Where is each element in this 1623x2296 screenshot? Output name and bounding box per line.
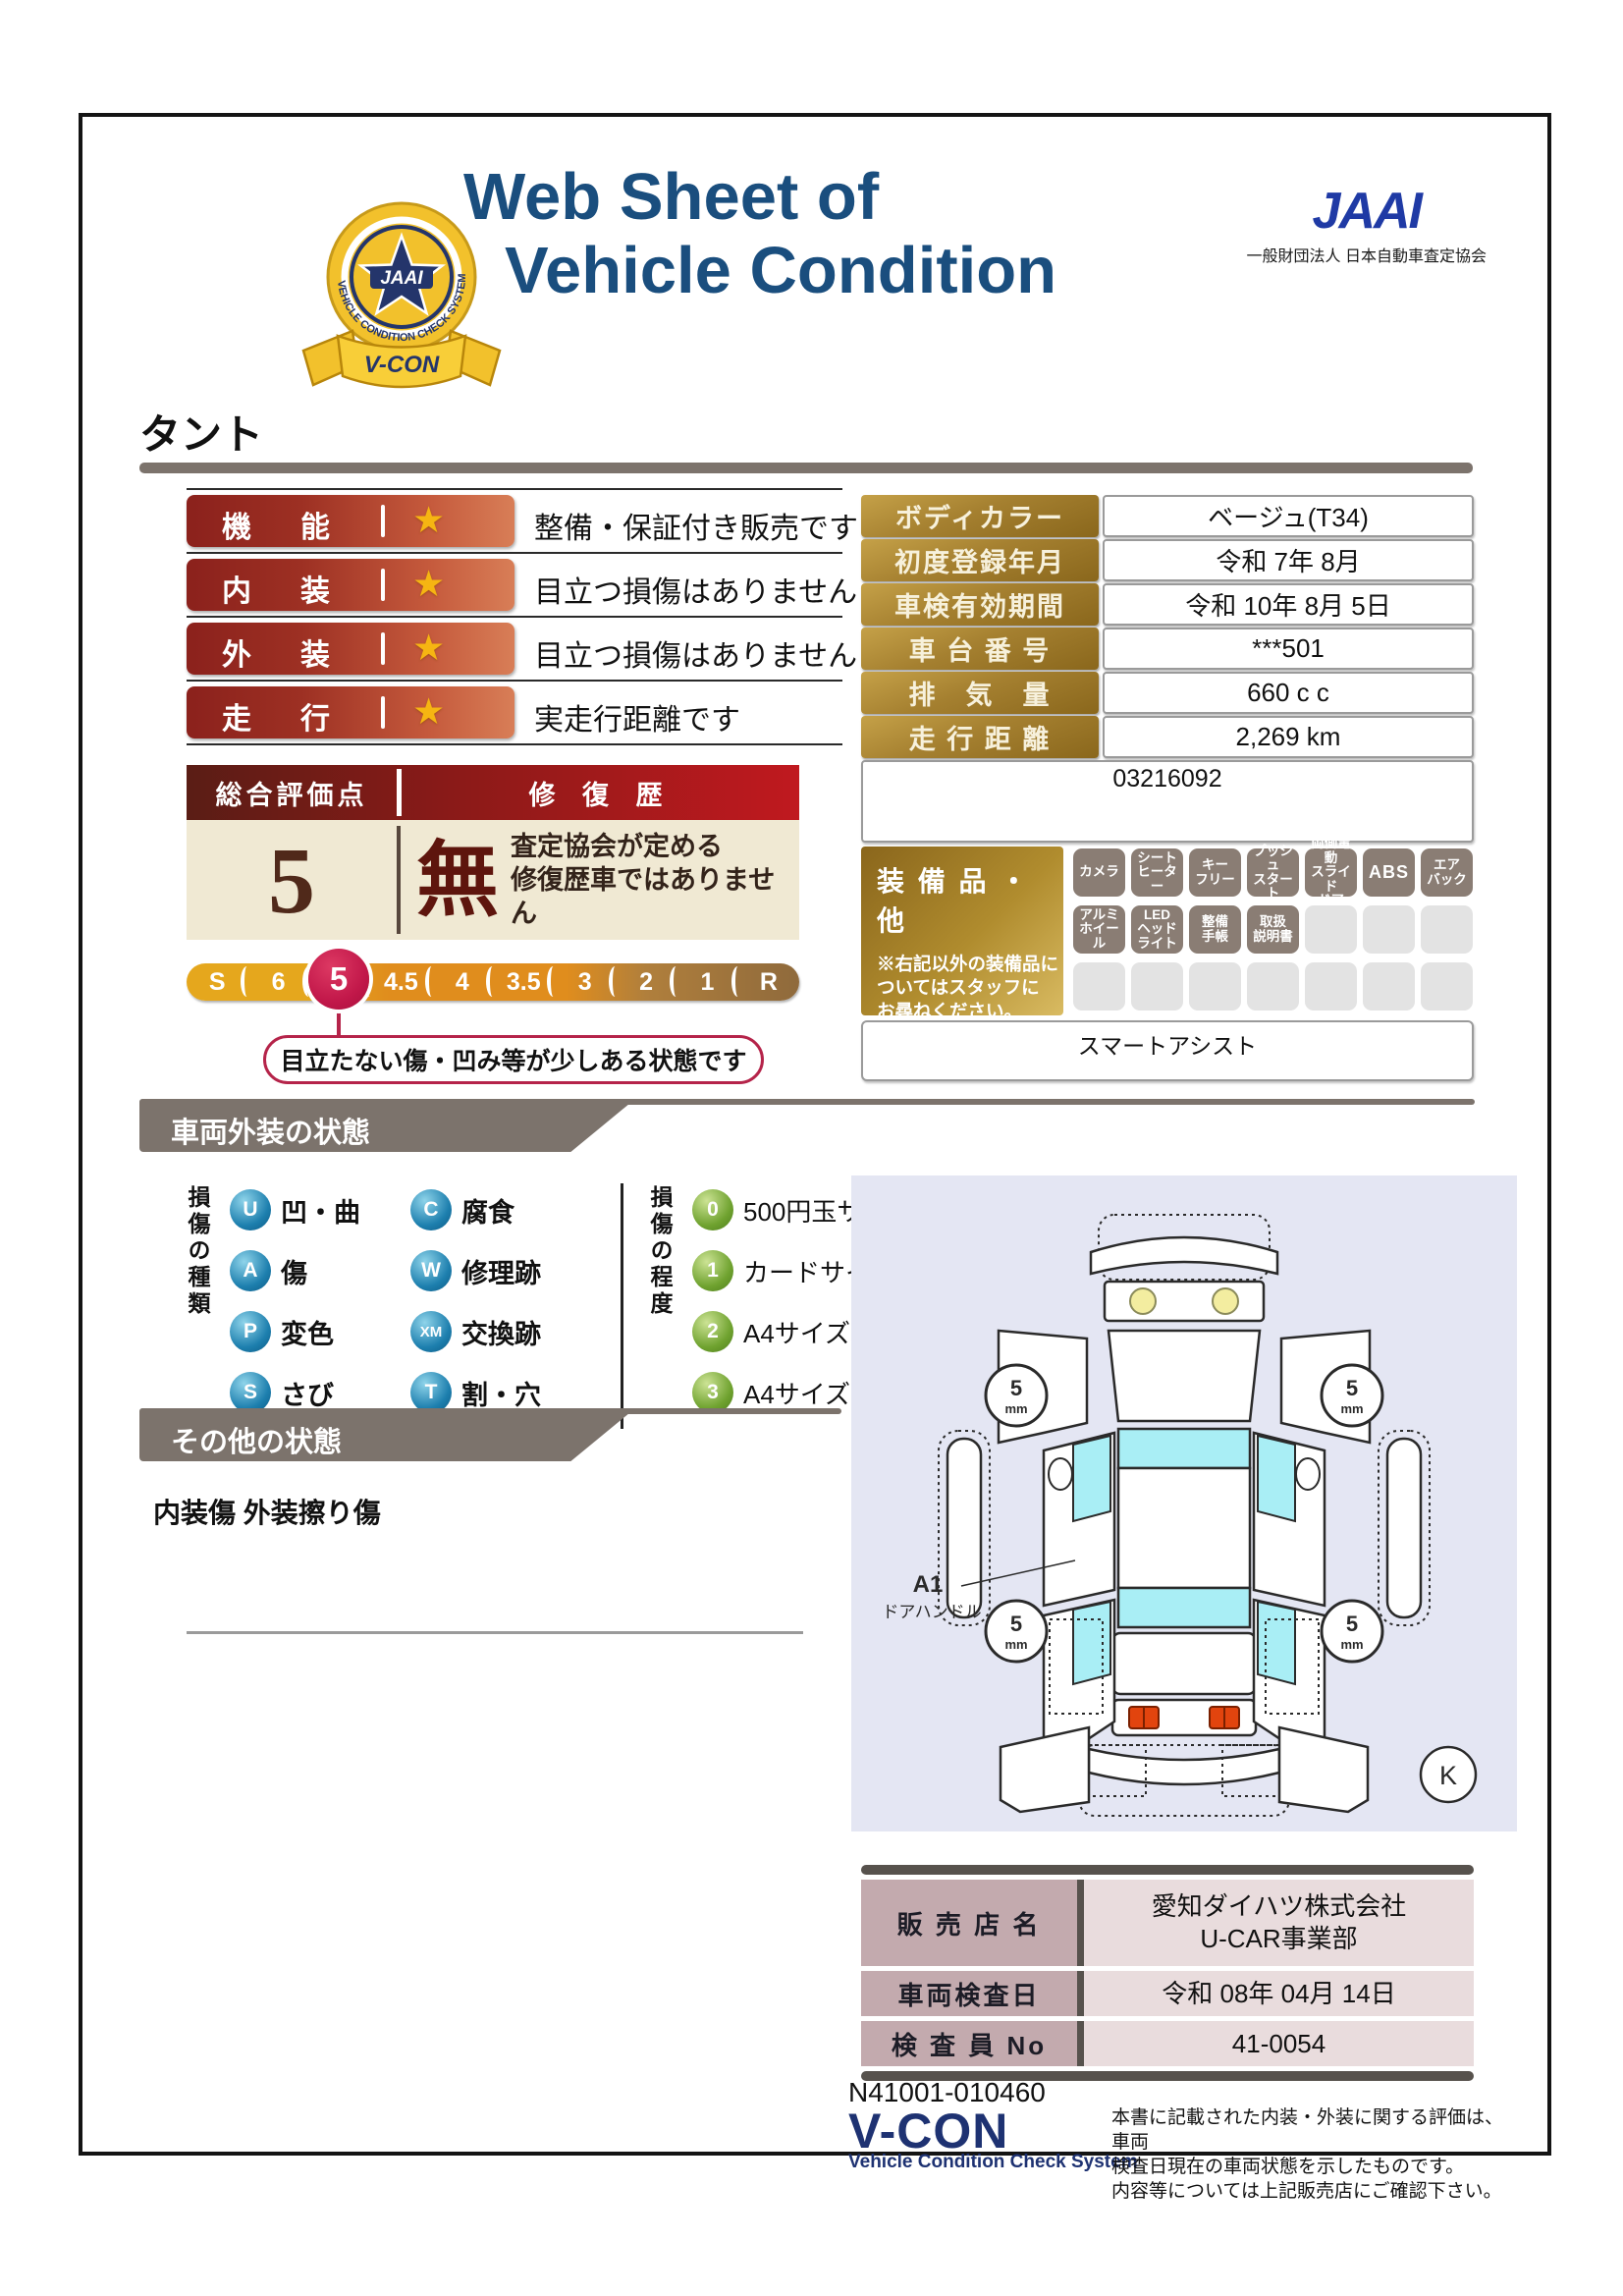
row-divider xyxy=(1077,2021,1084,2066)
jaai-subtitle: 一般財団法人 日本自動車査定協会 xyxy=(1247,243,1487,266)
sheet-frame: JAAI VEHICLE CONDITION CHECK SYSTEM V-CO… xyxy=(79,113,1551,2156)
scale-seg-2: 2 xyxy=(616,963,676,1001)
legend-item-u: U 凹・曲 xyxy=(230,1179,395,1240)
damage-legend: 損傷の種類 U 凹・曲 A 傷 P 変色 S さび C 腐食 xyxy=(181,1179,964,1429)
scale-seg-s: S xyxy=(187,963,247,1001)
svg-text:A1: A1 xyxy=(913,1571,944,1598)
reference-number-box: 03216092 xyxy=(861,760,1474,843)
svg-text:5: 5 xyxy=(1346,1376,1358,1400)
degree-code-badge: 1 xyxy=(692,1250,733,1291)
rating-bar: 走行 ★ xyxy=(187,686,514,738)
equipment-title-panel: 装 備 品 ・ 他 ※右記以外の装備品に ついてはスタッフに お尋ねください。 xyxy=(861,847,1063,1015)
detail-row-inspection-valid: 車検有効期間 令和 10年 8月 5日 xyxy=(861,583,1474,626)
svg-text:mm: mm xyxy=(1340,1637,1363,1652)
equipment-badge-push-start: プッシュ スタート xyxy=(1247,848,1299,897)
equipment-badge-power-slide-doors: 両側電動 スライド ドア xyxy=(1305,848,1357,897)
legend-item-a: A 傷 xyxy=(230,1240,395,1301)
tailgate xyxy=(1112,1633,1256,1694)
star-icon: ★ xyxy=(412,563,445,605)
car-damage-diagram: 5 mm 5 mm 5 mm 5 mm A1 ドアハンドル K xyxy=(851,1175,1517,1831)
front-bumper xyxy=(1091,1237,1277,1274)
legend-item-w: W 修理跡 xyxy=(410,1240,587,1301)
dealer-row-shop-name: 販 売 店 名 愛知ダイハツ株式会社 U-CAR事業部 xyxy=(861,1880,1474,1966)
scale-seg-4-5: 4.5 xyxy=(370,963,431,1001)
equipment-badge-service-book: 整備 手帳 xyxy=(1189,905,1241,954)
selected-score-marker: 5 xyxy=(308,949,369,1010)
rating-label: 機能 xyxy=(222,503,379,546)
equipment-cell-empty xyxy=(1421,905,1473,954)
star-icon: ★ xyxy=(412,690,445,733)
footer-disclaimer: 本書に記載された内装・外装に関する評価は、車両 検査日現在の車両状態を示したもの… xyxy=(1111,2105,1504,2204)
rating-row-exterior: 外装 ★ 目立つ損傷はありません xyxy=(187,616,842,680)
equipment-note: ※右記以外の装備品に ついてはスタッフに お尋ねください。 xyxy=(877,953,1063,1023)
dealer-row-inspector-no: 検 査 員 No 41-0054 xyxy=(861,2021,1474,2066)
degree-code-badge: 2 xyxy=(692,1311,733,1352)
rating-description: 実走行距離です xyxy=(534,695,740,738)
damage-code-badge: P xyxy=(230,1311,271,1352)
svg-text:mm: mm xyxy=(1004,1401,1027,1416)
banner-title: 車両外装の状態 xyxy=(139,1099,635,1152)
badge-jaai-text: JAAI xyxy=(380,268,423,289)
bar-divider xyxy=(381,632,385,665)
page-title-line2: Vehicle Condition xyxy=(505,238,1056,303)
svg-text:5: 5 xyxy=(1346,1612,1358,1636)
damage-degree-group-label: 損傷の程度 xyxy=(643,1185,676,1426)
headlight-left xyxy=(1130,1288,1156,1314)
rear-bumper xyxy=(1089,1749,1279,1784)
legend-divider xyxy=(621,1183,623,1429)
detail-row-body-color: ボディカラー ベージュ(T34) xyxy=(861,495,1474,537)
overall-score-body: 5 無 査定協会が定める 修復歴車ではありません xyxy=(187,820,799,940)
headlight-right xyxy=(1213,1288,1238,1314)
callout-connector xyxy=(337,1010,341,1037)
row-divider xyxy=(1077,1880,1084,1966)
equipment-badge-airbag: エア バック xyxy=(1421,848,1473,897)
degree-code-badge: 3 xyxy=(692,1372,733,1413)
corner-mark-k: K xyxy=(1421,1747,1476,1802)
rear-glass xyxy=(1118,1588,1250,1627)
badge-ribbon-text: V-CON xyxy=(364,352,440,378)
detail-row-first-registration: 初度登録年月 令和 7年 8月 xyxy=(861,539,1474,581)
scale-seg-3-5: 3.5 xyxy=(493,963,554,1001)
windshield xyxy=(1109,1331,1260,1421)
scale-seg-1: 1 xyxy=(676,963,737,1001)
damage-code-badge: U xyxy=(230,1189,271,1230)
damage-type-group-label: 損傷の種類 xyxy=(181,1185,214,1426)
damage-code-badge: C xyxy=(410,1189,452,1230)
legend-item-p: P 変色 xyxy=(230,1301,395,1362)
svg-text:5: 5 xyxy=(1010,1612,1022,1636)
equipment-badge-key-free: キー フリー xyxy=(1189,848,1241,897)
svg-text:mm: mm xyxy=(1340,1401,1363,1416)
overall-score-value: 5 xyxy=(187,820,397,940)
rating-bar: 外装 ★ xyxy=(187,623,514,675)
star-icon: ★ xyxy=(412,499,445,541)
equipment-badge-owners-manual: 取扱 説明書 xyxy=(1247,905,1299,954)
overall-score-title: 総合評価点 xyxy=(187,765,397,820)
equipment-cell-empty xyxy=(1131,962,1183,1011)
repair-history-value: 無 査定協会が定める 修復歴車ではありません xyxy=(401,820,799,940)
bar-divider xyxy=(381,696,385,729)
dealer-row-inspection-date: 車両検査日 令和 08年 04月 14日 xyxy=(861,1971,1474,2016)
svg-text:mm: mm xyxy=(1004,1637,1027,1652)
svg-text:ドアハンドル: ドアハンドル xyxy=(882,1603,981,1621)
scale-seg-3: 3 xyxy=(554,963,615,1001)
score-callout: 目立たない傷・凹み等が少しある状態です xyxy=(263,1035,764,1084)
roof-front-glass xyxy=(1118,1429,1250,1468)
rating-row-mileage: 走行 ★ 実走行距離です xyxy=(187,680,842,743)
rating-list: 機能 ★ 整備・保証付き販売です 内装 ★ 目立つ損傷はありません 外装 ★ 目… xyxy=(187,488,842,745)
equipment-badge-alloy-wheels: アルミ ホイール xyxy=(1073,905,1125,954)
notes-rule-line xyxy=(187,1631,803,1634)
equipment-badge-seat-heater: シート ヒーター xyxy=(1131,848,1183,897)
equipment-badge-camera: カメラ xyxy=(1073,848,1125,897)
degree-code-badge: 0 xyxy=(692,1189,733,1230)
page-title-line1: Web Sheet of xyxy=(463,164,1056,230)
detail-row-mileage: 走 行 距 離 2,269 km xyxy=(861,716,1474,758)
legend-item-c: C 腐食 xyxy=(410,1179,587,1240)
equipment-cell-empty xyxy=(1247,962,1299,1011)
rating-bar: 機能 ★ xyxy=(187,495,514,547)
vehicle-name: タント xyxy=(139,402,263,462)
scale-seg-r: R xyxy=(738,963,799,1001)
equipment-cell-empty xyxy=(1189,962,1241,1011)
scale-seg-4: 4 xyxy=(432,963,493,1001)
rating-description: 目立つ損傷はありません xyxy=(534,631,857,675)
rating-description: 目立つ損傷はありません xyxy=(534,568,857,611)
vcon-logo-subtitle: Vehicle Condition Check System xyxy=(848,2152,1138,2173)
bar-divider xyxy=(381,569,385,601)
bar-divider xyxy=(381,505,385,537)
equipment-badge-abs: ABS xyxy=(1363,848,1415,897)
svg-text:5: 5 xyxy=(1010,1376,1022,1400)
damage-code-badge: XM xyxy=(410,1311,452,1352)
damage-code-badge: W xyxy=(410,1250,452,1291)
rating-bar: 内装 ★ xyxy=(187,559,514,611)
equipment-grid: カメラ シート ヒーター キー フリー プッシュ スタート 両側電動 スライド … xyxy=(1073,848,1474,1011)
other-condition-text: 内装傷 外装擦り傷 xyxy=(153,1492,381,1531)
table-top-bar xyxy=(861,1865,1474,1875)
jaai-logo-block: JAAI 一般財団法人 日本自動車査定協会 xyxy=(1247,186,1487,266)
rating-label: 外装 xyxy=(222,630,379,674)
svg-text:K: K xyxy=(1439,1761,1457,1790)
score-scale: S 6 4.5 4 3.5 3 2 1 R xyxy=(187,963,799,1001)
rating-description: 整備・保証付き販売です xyxy=(534,504,858,547)
page-title: Web Sheet of Vehicle Condition xyxy=(463,164,1056,303)
jaai-logo: JAAI xyxy=(1247,186,1487,237)
equipment-cell-empty xyxy=(1363,962,1415,1011)
damage-code-badge: T xyxy=(410,1372,452,1413)
star-icon: ★ xyxy=(412,627,445,669)
equipment-cell-empty xyxy=(1363,905,1415,954)
detail-row-chassis-number: 車 台 番 号 ***501 xyxy=(861,628,1474,670)
rating-label: 内装 xyxy=(222,567,379,610)
repair-none-mark: 無 xyxy=(416,839,499,921)
equipment-cell-empty xyxy=(1073,962,1125,1011)
legend-item-xm: XM 交換跡 xyxy=(410,1301,587,1362)
dealer-table: 販 売 店 名 愛知ダイハツ株式会社 U-CAR事業部 車両検査日 令和 08年… xyxy=(861,1865,1474,2081)
overall-score-header: 総合評価点 修 復 歴 xyxy=(187,765,799,820)
damage-code-badge: A xyxy=(230,1250,271,1291)
row-divider xyxy=(1077,1971,1084,2016)
equipment-section: 装 備 品 ・ 他 ※右記以外の装備品に ついてはスタッフに お尋ねください。 … xyxy=(861,847,1474,1015)
equipment-badge-led-headlight: LED ヘッド ライト xyxy=(1131,905,1183,954)
detail-row-displacement: 排 気 量 660 c c xyxy=(861,672,1474,714)
equipment-cell-empty xyxy=(1421,962,1473,1011)
banner-title: その他の状態 xyxy=(139,1408,635,1461)
scale-seg-6: 6 xyxy=(247,963,308,1001)
smart-assist-box: スマートアシスト xyxy=(861,1020,1474,1081)
front-light-bar xyxy=(1105,1282,1264,1321)
roof-panel xyxy=(1118,1468,1250,1588)
equipment-title: 装 備 品 ・ 他 xyxy=(877,860,1063,939)
damage-code-badge: S xyxy=(230,1372,271,1413)
rating-row-interior: 内装 ★ 目立つ損傷はありません xyxy=(187,552,842,616)
repair-note: 査定協会が定める 修復歴車ではありません xyxy=(511,830,799,930)
rating-row-function: 機能 ★ 整備・保証付き販売です xyxy=(187,488,842,552)
equipment-cell-empty xyxy=(1305,962,1357,1011)
rating-label: 走行 xyxy=(222,694,379,738)
repair-history-title: 修 復 歴 xyxy=(402,765,799,820)
equipment-cell-empty xyxy=(1305,905,1357,954)
top-divider-bar xyxy=(139,463,1473,473)
